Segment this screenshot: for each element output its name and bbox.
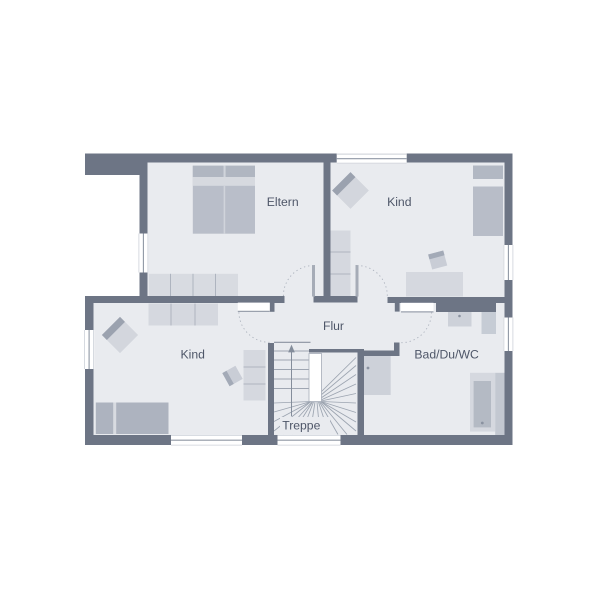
svg-text:Treppe: Treppe (282, 418, 320, 432)
svg-text:Kind: Kind (387, 195, 411, 209)
svg-text:Kind: Kind (180, 347, 204, 361)
svg-text:Flur: Flur (323, 319, 344, 333)
svg-text:Eltern: Eltern (267, 195, 299, 209)
svg-text:Bad/Du/WC: Bad/Du/WC (414, 347, 479, 361)
